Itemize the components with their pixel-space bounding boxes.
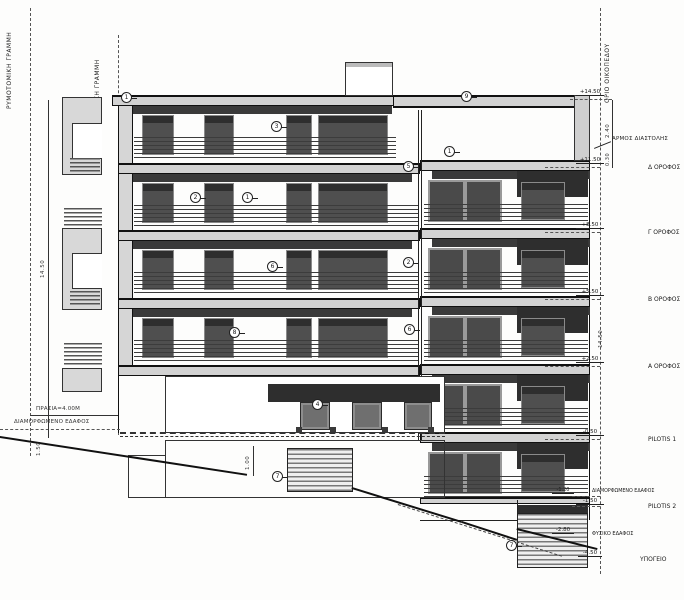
formed-ground-label-left: ΔΙΑΜΟΡΦΩΜΕΝΟ ΕΔΑΦΟΣ: [14, 419, 89, 425]
side-balcony-recess: [72, 123, 102, 159]
floor-slab: [118, 298, 420, 309]
slab-shadow: [130, 174, 412, 182]
floor-slab: [420, 228, 590, 239]
entrance-door: [352, 402, 382, 430]
slab-shadow: [130, 106, 392, 114]
slab-shadow: [130, 309, 412, 317]
parapet-dim: 2.40: [605, 116, 611, 138]
level-elevation: +5.50: [576, 289, 604, 296]
level-leader-line: [545, 299, 600, 300]
floor-slab: [112, 95, 400, 106]
joint-dim: 0.30: [605, 150, 611, 166]
slab-shadow: [130, 241, 412, 249]
ground-hatch: [120, 436, 445, 437]
ground-dim: 1.50: [36, 436, 42, 456]
callout-8: 8: [229, 327, 240, 338]
pilotis-dim-line: [253, 446, 254, 476]
callout-3: 3: [271, 121, 282, 132]
prasia-dim-line: [30, 415, 118, 416]
side-balcony-louver: [70, 291, 100, 305]
callout-1: 1: [444, 146, 455, 157]
level-elevation: +14.50: [576, 89, 604, 96]
floor-slab: [420, 497, 590, 504]
callout-1: 1: [242, 192, 253, 203]
expansion-joint-label: ΑΡΜΟΣ ΔΙΑΣΤΟΛΗΣ: [612, 136, 668, 142]
callout-7: 7: [272, 471, 283, 482]
wall-pier: [118, 309, 133, 366]
balcony-railing: [424, 340, 588, 362]
floor-slab: [420, 296, 590, 307]
wall-pier: [118, 106, 133, 163]
entrance-door: [404, 402, 432, 430]
side-balcony-recess: [72, 253, 102, 289]
level-label: PILOTIS 2: [648, 503, 676, 510]
formed-ground-dashed: [0, 429, 120, 430]
callout-6: 6: [404, 324, 415, 335]
roof-parapet: [393, 95, 590, 108]
pilotis-dim: 1.00: [245, 450, 251, 470]
level-leader-line: [545, 232, 600, 233]
wall-pier: [118, 241, 133, 298]
callout-2: 2: [403, 257, 414, 268]
balcony-railing: [134, 205, 418, 227]
level-elevation: -2.80: [552, 527, 574, 534]
balcony-railing: [424, 408, 588, 430]
garage-grille: [517, 513, 588, 568]
balcony-railing: [424, 272, 588, 294]
floor-slab: [420, 432, 590, 443]
level-elevation: -4.50: [578, 550, 602, 557]
level-label: Α ΟΡΟΦΟΣ: [648, 363, 680, 370]
side-railing: [64, 343, 102, 365]
level-label: ΦΥΣΙΚΟ ΕΔΑΦΟΣ: [592, 531, 633, 537]
roof-bulkhead: [345, 62, 393, 96]
level-leader-line: [545, 167, 600, 168]
balcony-railing: [134, 137, 396, 159]
ground-hatch: [120, 432, 445, 434]
floor-slab: [420, 160, 590, 171]
callout-7: 7: [506, 540, 517, 551]
ventilation-grille: [287, 448, 353, 492]
level-elevation: -1.50: [576, 498, 604, 505]
level-leader-line: [572, 506, 600, 507]
elevation-drawing: ΡΥΜΟΤΟΜΙΚΗ ΓΡΑΜΜΗ ΟΙΚΟΔΟΜΙΚΗ ΓΡΑΜΜΗ ΟΡΙΟ…: [0, 0, 684, 600]
balcony-railing: [424, 204, 588, 226]
parapet-dim-line: [612, 100, 613, 168]
callout-1: 1: [121, 92, 132, 103]
callout-5: 5: [403, 161, 414, 172]
level-elevation: -0.50: [576, 429, 604, 436]
level-label: ΥΠΟΓΕΙΟ: [640, 556, 667, 563]
callout-9: 9: [461, 91, 472, 102]
level-elevation: +8.50: [576, 222, 604, 229]
side-balcony-louver: [70, 158, 100, 172]
level-leader-line: [545, 366, 600, 367]
height-dim-right: 14.50: [598, 318, 604, 348]
prasia-label: ΠΡΑΣΙΑ=4.00Μ: [36, 406, 80, 412]
balcony-railing: [134, 340, 418, 362]
floor-slab: [118, 163, 420, 174]
floor-slab: [118, 230, 420, 241]
level-elevation: +11.50: [576, 157, 604, 164]
level-label: Β ΟΡΟΦΟΣ: [648, 296, 680, 303]
callout-6: 6: [267, 261, 278, 272]
level-leader-line: [570, 99, 612, 100]
height-dim-line: [48, 100, 49, 438]
retaining-wall: [517, 500, 518, 568]
level-elevation: -1.20: [552, 487, 574, 494]
balcony-railing: [134, 272, 418, 294]
level-leader-line: [545, 439, 600, 440]
height-dim-left: 14.50: [40, 248, 46, 278]
level-leader-line: [572, 496, 600, 497]
callout-2: 2: [190, 192, 201, 203]
side-balcony: [62, 368, 102, 392]
wall-pier: [118, 174, 133, 231]
level-elevation: +2.50: [576, 356, 604, 363]
parapet-return-wall: [574, 95, 590, 161]
level-label: PILOTIS 1: [648, 436, 676, 443]
callout-4: 4: [312, 399, 323, 410]
floor-slab: [118, 365, 420, 376]
side-railing: [64, 208, 102, 228]
entrance-transom: [268, 384, 440, 402]
level-label: ΔΙΑΜΟΡΦΩΜΕΝΟ ΕΔΑΦΟΣ: [592, 489, 654, 494]
pilotis2-floor-line: [420, 520, 517, 521]
level-label: Δ ΟΡΟΦΟΣ: [648, 164, 680, 171]
level-label: Γ ΟΡΟΦΟΣ: [648, 229, 680, 236]
